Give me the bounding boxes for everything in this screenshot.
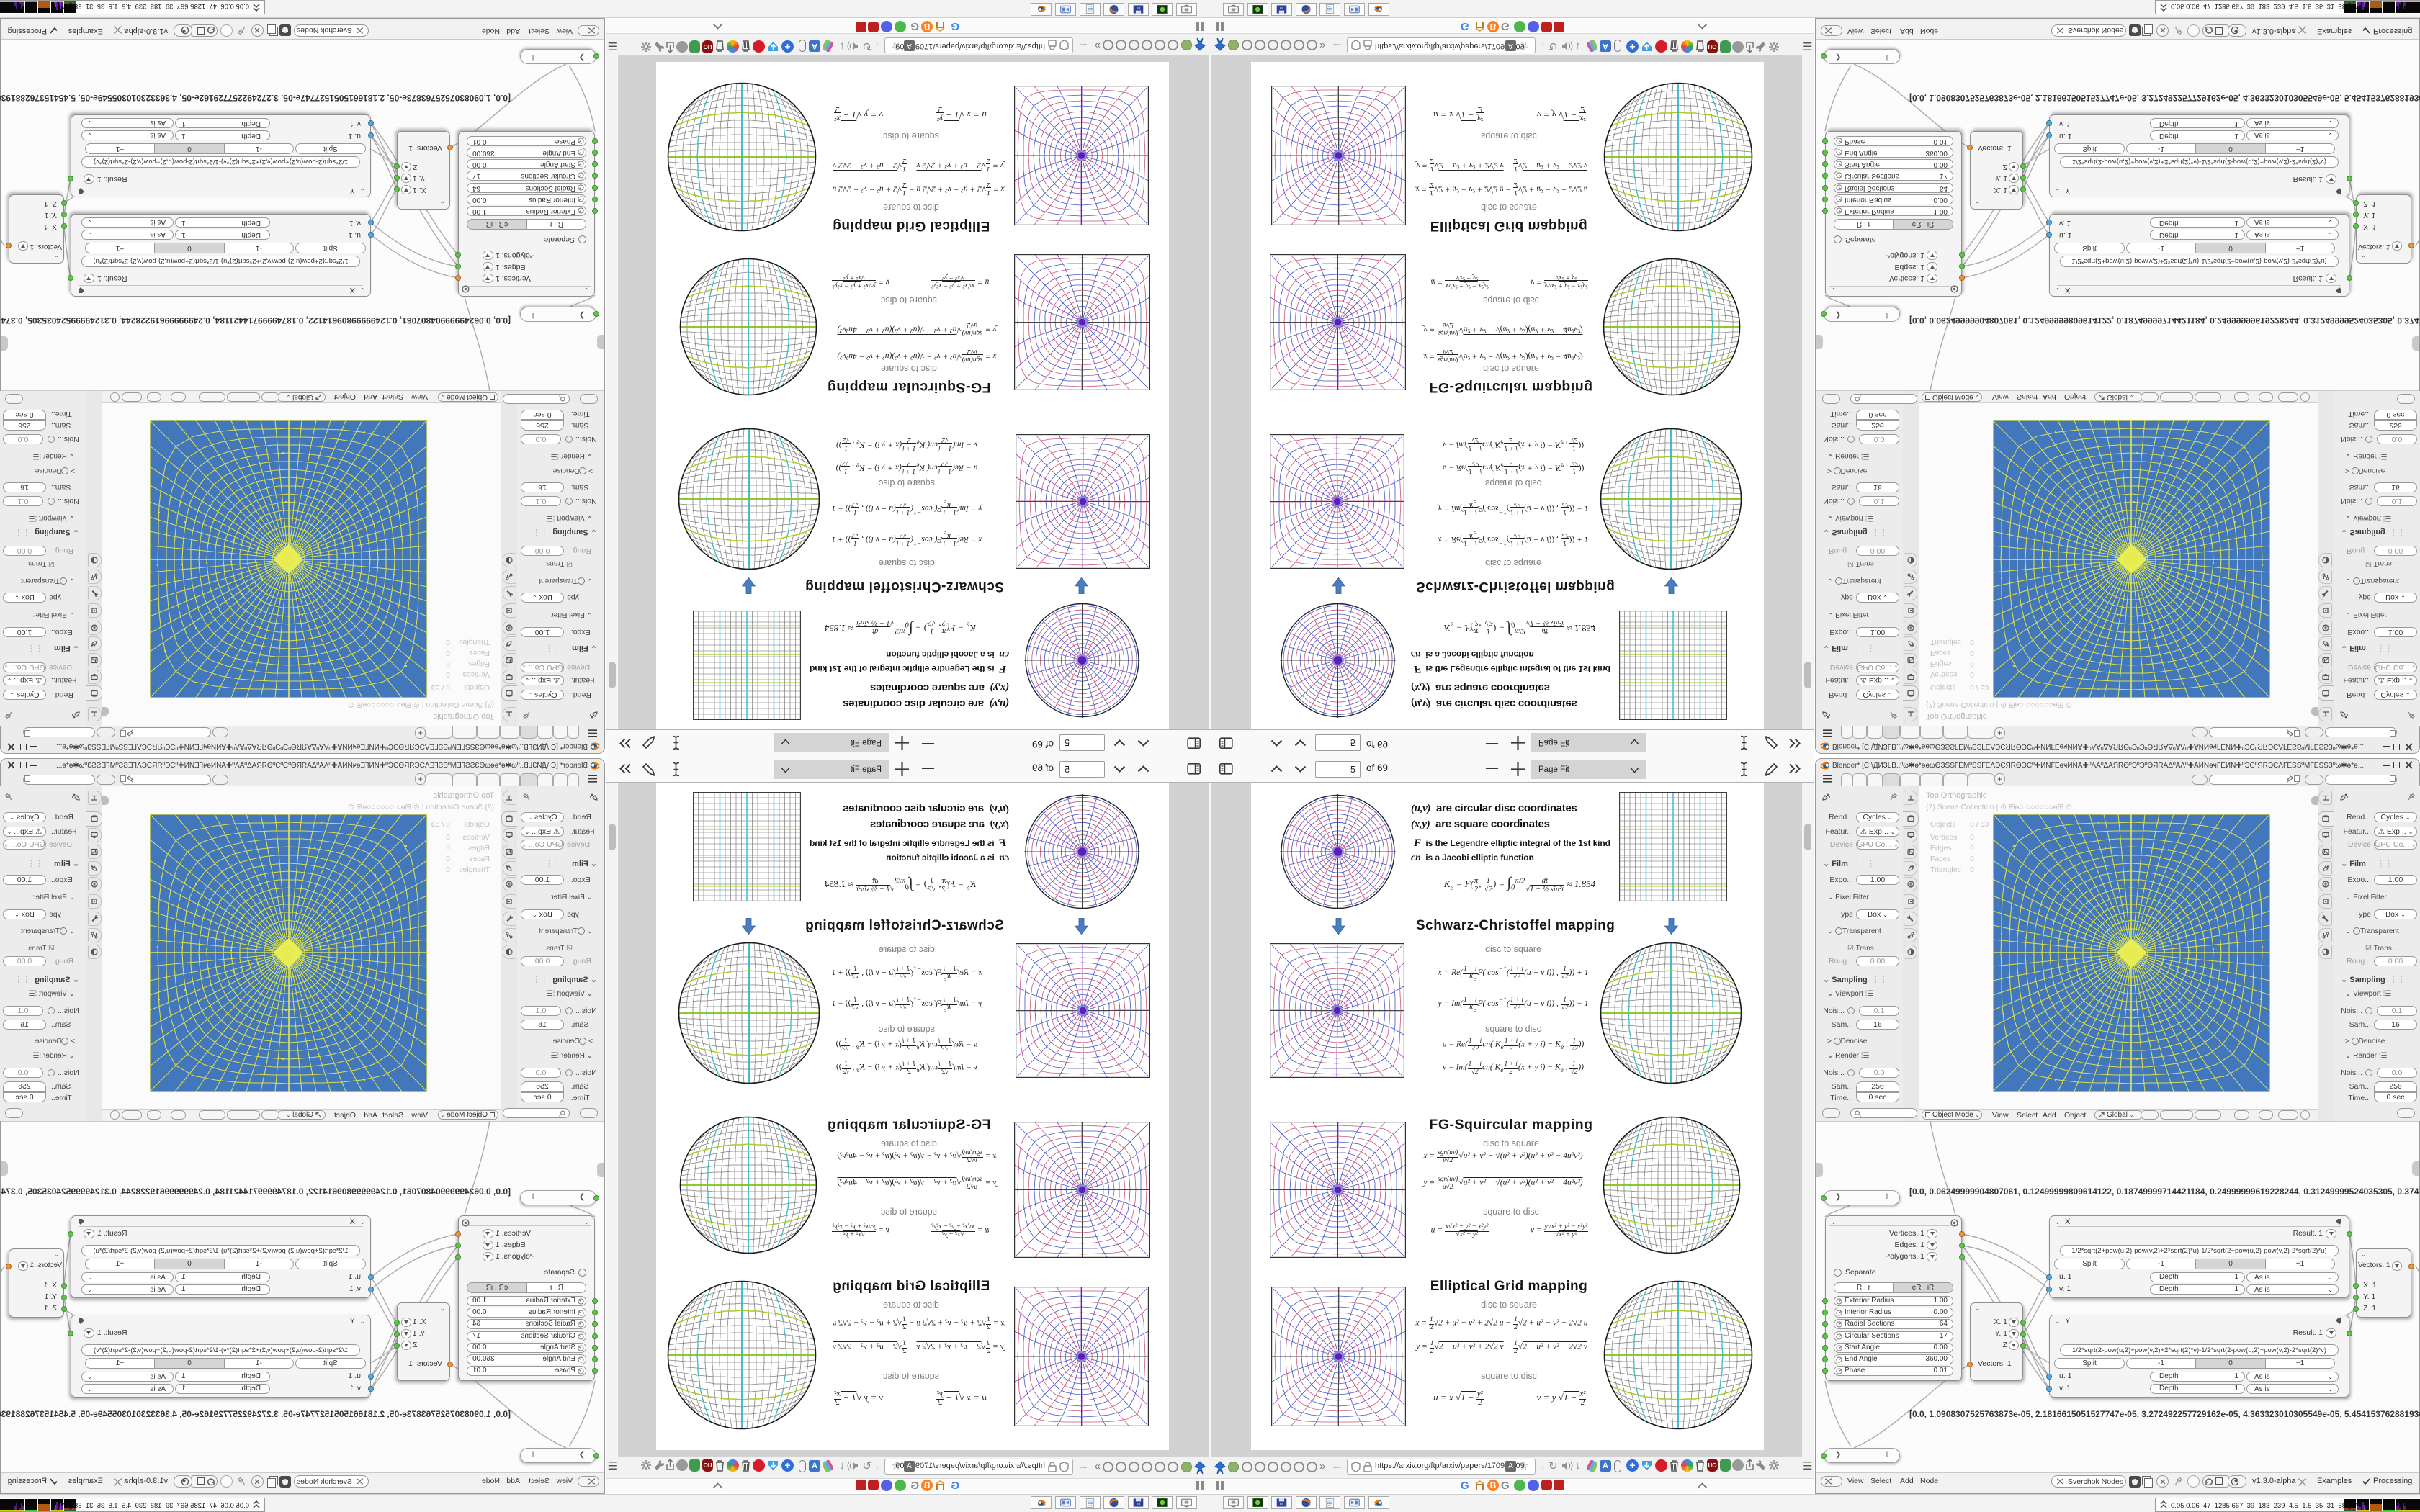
svg-text:64: 64 xyxy=(1280,6,1284,10)
svg-text:64: 64 xyxy=(1280,1502,1284,1506)
svg-text:64: 64 xyxy=(1137,1502,1141,1506)
svg-text:64: 64 xyxy=(1137,6,1141,10)
